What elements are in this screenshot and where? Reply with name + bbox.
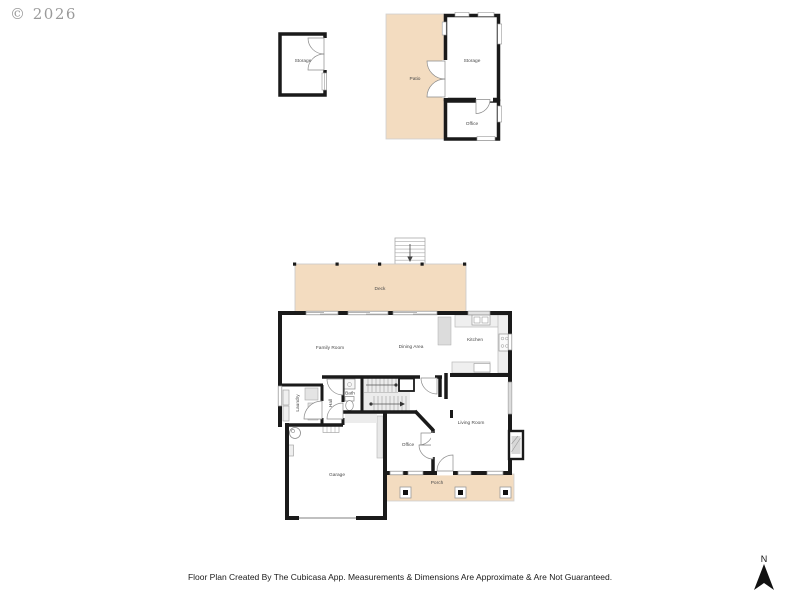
room-label-porch: Porch — [431, 480, 444, 486]
room-label-family-room: Family Room — [316, 345, 344, 351]
garage-step-area — [345, 414, 377, 423]
room-label-dining-area: Dining Area — [399, 344, 424, 350]
room-label-kitchen: Kitchen — [467, 337, 483, 343]
water-heater — [290, 428, 301, 439]
staircase — [363, 378, 414, 412]
room-label-shed-storage: Storage — [295, 58, 312, 64]
room-label-deck: Deck — [375, 286, 387, 292]
bath-sink — [344, 379, 355, 389]
upper-office-walls — [446, 101, 499, 139]
room-label-garage: Garage — [329, 472, 345, 478]
deck-stairs — [395, 238, 425, 264]
room-label-office: Office — [402, 442, 415, 448]
room-label-living-room: Living Room — [458, 420, 485, 426]
fireplace — [509, 431, 523, 459]
kitchen-half-wall — [438, 317, 451, 345]
north-label: N — [761, 554, 768, 564]
upper-storage-walls — [446, 16, 499, 100]
floor-plan-drawing: Storage Patio Storage — [0, 0, 800, 600]
room-shed-storage: Storage — [280, 34, 327, 95]
porch: Porch — [386, 474, 514, 501]
room-label-hall: Hall — [328, 399, 334, 407]
office-door-opening — [431, 433, 435, 457]
deck: Deck — [293, 238, 466, 312]
stair-closet — [399, 379, 414, 392]
kitchen-sink — [472, 315, 490, 325]
room-label-upper-storage: Storage — [464, 58, 481, 64]
living-room-column — [450, 410, 453, 418]
disclaimer-text: Floor Plan Created By The Cubicasa App. … — [0, 572, 800, 582]
garage-shelf — [377, 416, 383, 458]
room-label-laundry: Laundry — [295, 394, 301, 412]
floor-plan-page: © 2026 Storage — [0, 0, 800, 600]
room-label-patio: Patio — [410, 76, 421, 82]
outbuilding: Patio Storage Office — [386, 12, 502, 140]
shed-window — [322, 73, 327, 90]
washer — [305, 388, 318, 400]
room-label-upper-office: Office — [466, 121, 479, 127]
room-label-bath: Bath — [345, 391, 355, 397]
kitchen-dishwasher — [474, 364, 490, 373]
toilet-bowl — [346, 401, 354, 411]
